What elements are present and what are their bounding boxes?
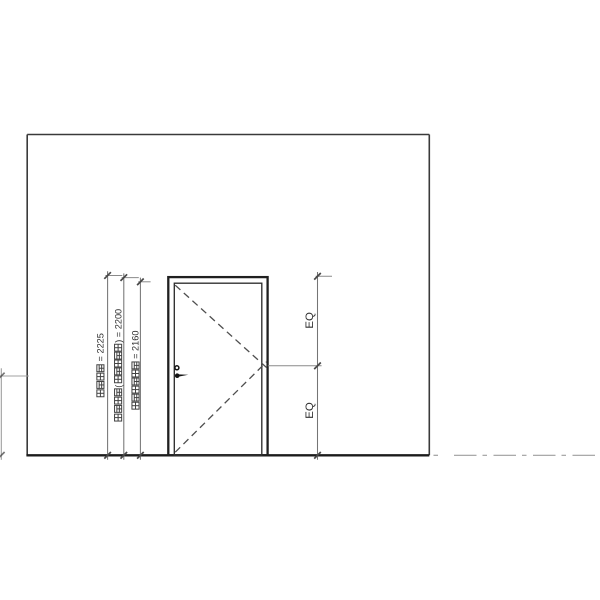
svg-text:) = 2200: ) = 2200 (113, 309, 123, 343)
svg-text:= 2160: = 2160 (131, 331, 141, 362)
svg-text:EQ: EQ (304, 312, 316, 329)
svg-text:(: ( (113, 385, 123, 388)
svg-text:EQ: EQ (304, 402, 316, 419)
svg-text:= 2225: = 2225 (96, 333, 106, 364)
